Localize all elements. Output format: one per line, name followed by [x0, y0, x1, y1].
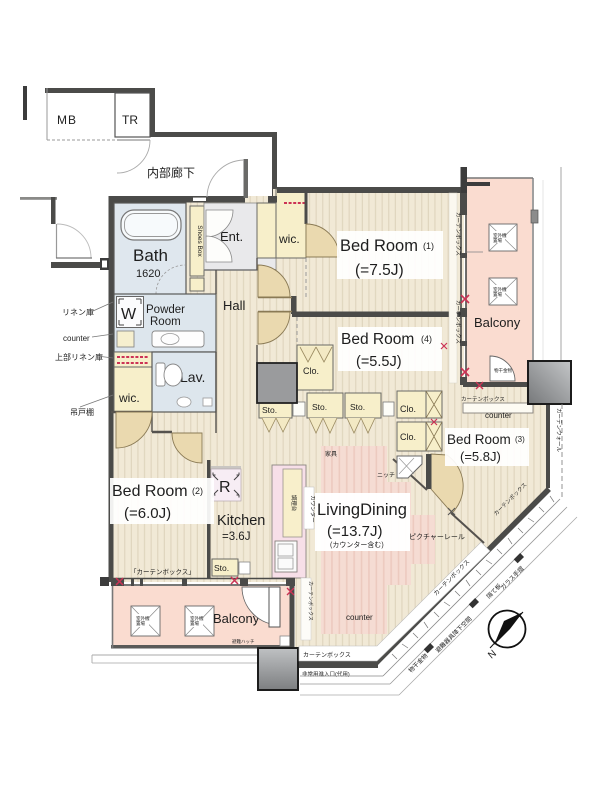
svg-text:(=5.8J): (=5.8J) — [460, 449, 501, 464]
svg-text:リネン庫: リネン庫 — [62, 307, 94, 317]
svg-text:Sto.: Sto. — [214, 563, 229, 573]
svg-text:置場: 置場 — [136, 620, 145, 627]
svg-text:(カウンター含む): (カウンター含む) — [330, 540, 384, 549]
svg-text:吊戸棚: 吊戸棚 — [70, 407, 94, 417]
svg-text:R: R — [219, 479, 231, 496]
svg-text:1620: 1620 — [136, 268, 160, 280]
svg-text:Bed Room: Bed Room — [112, 483, 188, 500]
svg-text:Bed Room: Bed Room — [341, 331, 414, 348]
svg-text:(=5.5J): (=5.5J) — [356, 354, 402, 370]
svg-text:Clo.: Clo. — [400, 404, 416, 414]
svg-text:ニッチ: ニッチ — [377, 472, 395, 479]
svg-text:Sto.: Sto. — [312, 402, 327, 412]
svg-text:置場: 置場 — [493, 237, 502, 244]
svg-text:Clo.: Clo. — [400, 432, 416, 442]
svg-text:Hall: Hall — [223, 298, 246, 313]
svg-text:(3): (3) — [515, 435, 525, 444]
svg-text:Kitchen: Kitchen — [217, 513, 265, 529]
svg-text:カーテンボックス: カーテンボックス — [455, 300, 463, 344]
svg-text:Lav.: Lav. — [180, 369, 205, 385]
svg-text:TR: TR — [122, 113, 138, 127]
svg-text:内部廊下: 内部廊下 — [147, 165, 195, 180]
svg-text:Ent.: Ent. — [220, 229, 243, 244]
svg-text:W: W — [121, 306, 137, 323]
svg-text:Bed Room: Bed Room — [447, 432, 511, 447]
svg-text:Powder: Powder — [146, 304, 185, 316]
svg-text:wic.: wic. — [118, 391, 140, 405]
svg-text:Sto.: Sto. — [350, 402, 365, 412]
svg-text:ピクチャーレール: ピクチャーレール — [409, 533, 465, 541]
svg-text:Bath: Bath — [133, 246, 168, 265]
svg-text:Bed Room: Bed Room — [340, 237, 418, 255]
svg-text:避難ハッチ: 避難ハッチ — [232, 638, 255, 645]
svg-text:Clo.: Clo. — [303, 366, 319, 376]
svg-text:LivingDining: LivingDining — [317, 501, 407, 519]
svg-text:「カーテンボックス」: 「カーテンボックス」 — [130, 568, 195, 576]
svg-text:Room: Room — [150, 316, 181, 328]
svg-text:(=13.7J): (=13.7J) — [327, 523, 382, 540]
svg-text:counter: counter — [63, 334, 90, 343]
svg-text:物干金物: 物干金物 — [494, 367, 512, 374]
svg-text:=3.6J: =3.6J — [222, 531, 250, 543]
svg-text:counter: counter — [485, 411, 512, 420]
svg-text:wic.: wic. — [278, 232, 300, 246]
svg-text:(4): (4) — [421, 334, 432, 344]
svg-text:カーテンウォール: カーテンウォール — [555, 408, 563, 453]
svg-text:非常用進入口(代用): 非常用進入口(代用) — [302, 670, 350, 678]
svg-text:Shoes Box: Shoes Box — [196, 225, 203, 257]
svg-text:(=6.0J): (=6.0J) — [124, 505, 171, 522]
svg-text:カーテンボックス: カーテンボックス — [303, 651, 351, 659]
svg-text:(1): (1) — [423, 241, 434, 251]
svg-text:置場: 置場 — [190, 620, 199, 627]
svg-text:調理台: 調理台 — [290, 495, 298, 512]
svg-text:(2): (2) — [192, 486, 203, 496]
svg-text:(=7.5J): (=7.5J) — [355, 262, 404, 279]
svg-text:Sto.: Sto. — [262, 405, 277, 415]
svg-text:Balcony: Balcony — [474, 315, 521, 330]
svg-text:MB: MB — [57, 113, 77, 127]
svg-text:カーテンボックス: カーテンボックス — [461, 395, 505, 403]
svg-text:家具: 家具 — [325, 450, 337, 458]
svg-text:カーテンボックス: カーテンボックス — [307, 581, 314, 621]
svg-text:カーテンボックス: カーテンボックス — [455, 212, 463, 256]
svg-text:置場: 置場 — [493, 291, 502, 298]
svg-text:counter: counter — [346, 613, 373, 622]
svg-text:上部リネン庫: 上部リネン庫 — [55, 352, 103, 362]
